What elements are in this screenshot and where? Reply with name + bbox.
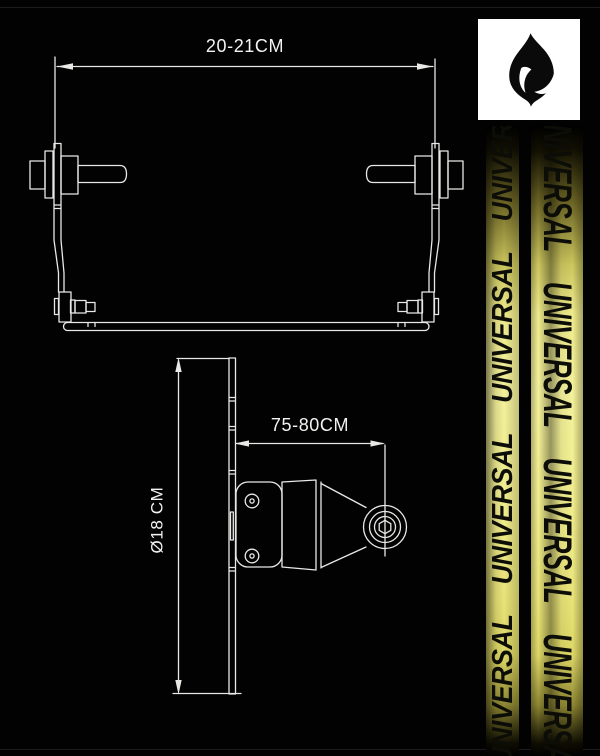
strap-brand-text: UNIVERSAL [486, 614, 517, 756]
strap-left: UNIVERSALUNIVERSALUNIVERSALUNIVERSAL [486, 126, 519, 756]
strap-left-text: UNIVERSALUNIVERSALUNIVERSALUNIVERSAL [486, 126, 519, 756]
front-cross-bar [64, 323, 430, 331]
front-right-pin-assembly [367, 151, 464, 198]
strap-right: UNIVERSALUNIVERSALUNIVERSALUNIVERSAL [531, 126, 583, 756]
strap-brand-text: UNIVERSAL [535, 126, 582, 252]
front-width-dimension-label: 20-21CM [165, 36, 325, 57]
side-length-dimension [235, 440, 386, 556]
strap-brand-text: UNIVERSAL [486, 126, 517, 221]
flame-icon [498, 31, 560, 109]
side-view-drawing [173, 358, 407, 695]
side-mounting-plate [229, 358, 236, 694]
brand-logo [478, 19, 580, 120]
front-width-dimension [55, 57, 435, 148]
front-view-drawing [30, 57, 463, 331]
strap-brand-text: UNIVERSAL [486, 251, 517, 403]
front-left-strap-arm [54, 144, 95, 323]
strap-right-text: UNIVERSALUNIVERSALUNIVERSALUNIVERSAL [533, 126, 581, 756]
front-left-pin-assembly [30, 151, 127, 198]
side-bracket-body [236, 480, 366, 570]
strap-brand-text: UNIVERSAL [535, 282, 582, 428]
product-diagram-image: 20-21CM 75-80CM Ø18 CM UNIVERSALUNIVERSA… [0, 0, 600, 756]
side-length-dimension-label: 75-80CM [230, 415, 390, 436]
side-diameter-dimension-label: Ø18 CM [148, 460, 170, 581]
strap-brand-text: UNIVERSAL [535, 633, 582, 756]
strap-brand-text: UNIVERSAL [535, 458, 582, 604]
strap-brand-text: UNIVERSAL [486, 433, 517, 585]
front-right-strap-arm [398, 144, 439, 323]
